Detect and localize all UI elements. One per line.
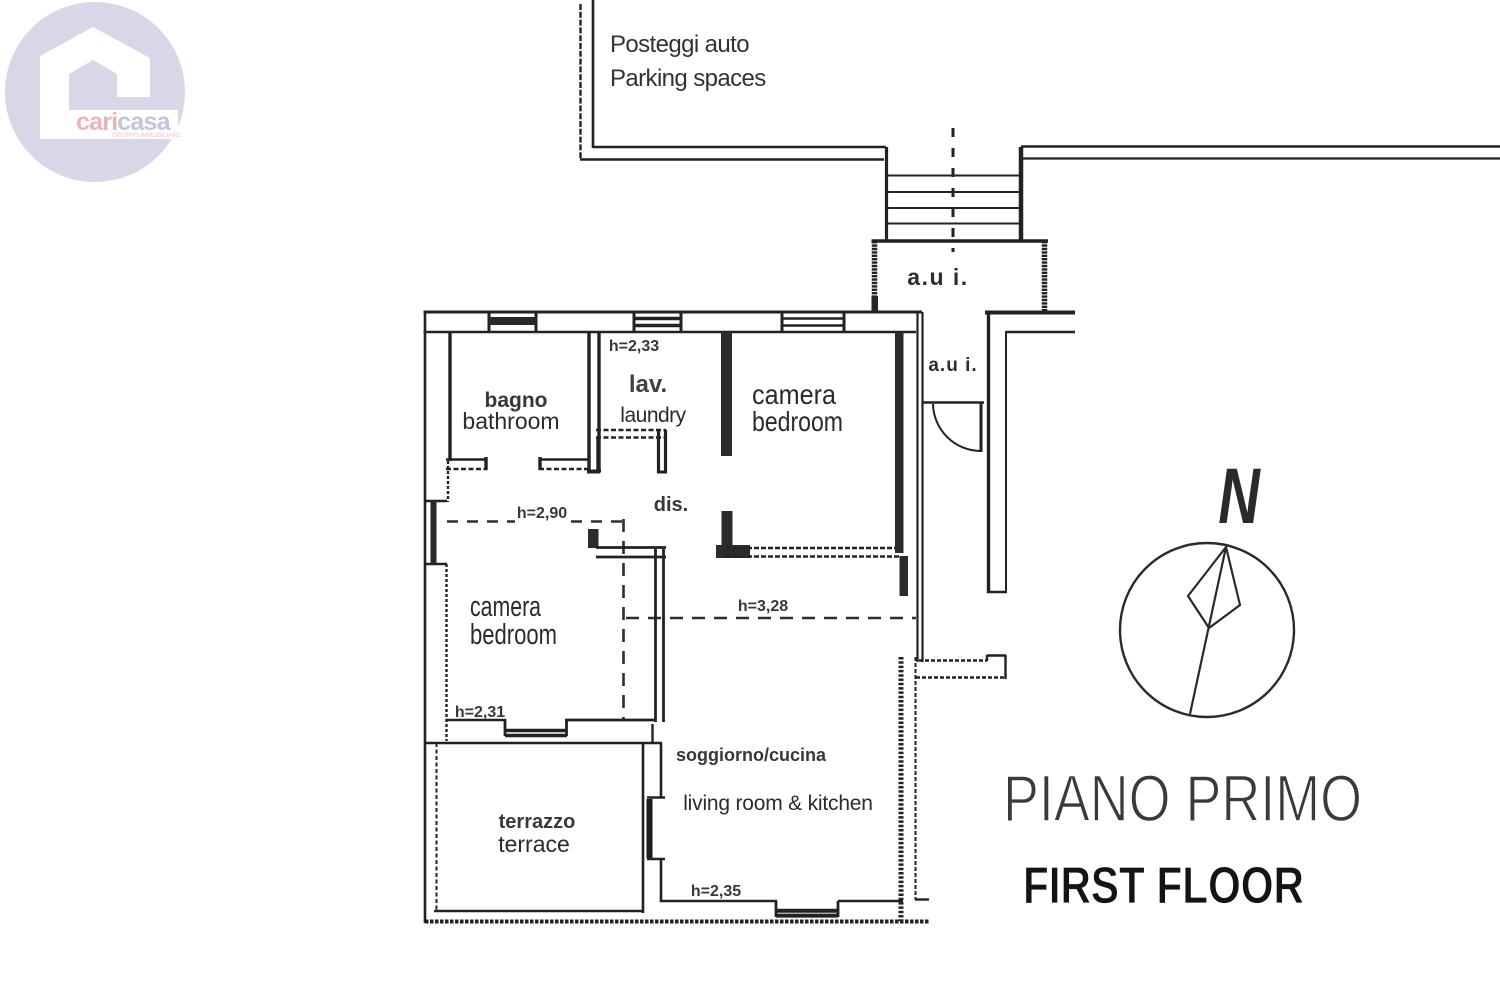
svg-text:Parking spaces: Parking spaces (610, 65, 766, 92)
svg-text:h=2,35: h=2,35 (691, 883, 741, 900)
svg-text:Posteggi auto: Posteggi auto (610, 31, 749, 58)
svg-text:terrace: terrace (498, 831, 570, 857)
svg-text:FIRST FLOOR: FIRST FLOOR (1023, 857, 1304, 915)
svg-text:lav.: lav. (629, 371, 667, 398)
svg-text:PIANO PRIMO: PIANO PRIMO (1003, 761, 1362, 835)
svg-text:a.u i.: a.u i. (928, 355, 977, 376)
svg-text:terrazzo: terrazzo (499, 811, 576, 833)
svg-text:soggiorno/cucina: soggiorno/cucina (676, 745, 827, 765)
svg-text:h=2,90: h=2,90 (517, 505, 567, 522)
svg-text:GRUPPO IMMOBILIARE: GRUPPO IMMOBILIARE (112, 132, 181, 139)
svg-text:h=2,31: h=2,31 (455, 704, 505, 721)
svg-text:bedroom: bedroom (752, 406, 843, 437)
svg-text:living room & kitchen: living room & kitchen (683, 792, 873, 815)
svg-text:h=2,33: h=2,33 (609, 338, 659, 355)
svg-text:a.u i.: a.u i. (907, 264, 968, 290)
svg-text:laundry: laundry (620, 404, 686, 427)
svg-text:N: N (1218, 451, 1261, 540)
svg-text:bedroom: bedroom (470, 619, 557, 651)
svg-text:bathroom: bathroom (462, 408, 559, 434)
svg-text:h=3,28: h=3,28 (738, 598, 788, 615)
svg-text:dis.: dis. (654, 494, 688, 516)
